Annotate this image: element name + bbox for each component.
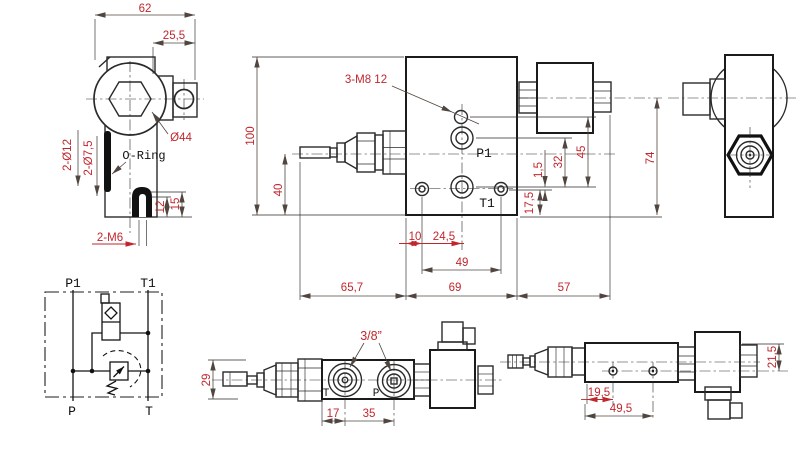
dim-57: 57 [558,282,571,294]
oring-label: O-Ring [122,149,165,163]
schematic-port-t1: T1 [140,276,156,291]
port-label-t: T [323,388,330,400]
schematic-port-p: P [68,404,76,419]
dim-thread-note: 3-M8 12 [345,74,387,86]
schematic-port-t: T [145,404,153,419]
dim-holes-12: 2-Ø12 [62,139,74,171]
dim-holes-7-5: 2-Ø7,5 [83,140,95,175]
m8-hole-left [416,183,429,196]
dim-width-62: 62 [139,3,152,15]
adjust-stem [300,131,406,174]
view-bottom-front: T P 29 17 35 3/8” [201,322,502,426]
dim-74: 74 [645,151,657,164]
view-top-left: 62 25,5 Ø44 O-Ring 2-Ø12 2-Ø7,5 12 15 2-… [62,3,204,246]
check-valve-symbol [105,307,117,319]
dim-knob-dia: Ø44 [170,132,192,144]
m6-slot-inner [139,194,146,217]
schematic-border [45,292,162,397]
valve-body-side [585,343,678,382]
dim-49-5: 49,5 [610,403,632,415]
dim-10: 10 [409,231,422,243]
dim-offset-25-5: 25,5 [163,30,185,42]
dim-thread-m6: 2-M6 [97,232,123,244]
m8-hole-right [495,183,508,196]
schematic-port-p1: P1 [65,276,81,291]
connector-screw-side [730,403,742,418]
dim-19-5: 19,5 [588,387,610,399]
view-bottom-side: 19,5 49,5 21,5 [500,332,788,420]
oring-groove [104,131,111,192]
technical-drawing-canvas: 62 25,5 Ø44 O-Ring 2-Ø12 2-Ø7,5 12 15 2-… [0,0,800,450]
dim-35: 35 [363,408,376,420]
connector-neck-side [705,387,731,400]
port-label-t1: T1 [479,196,495,211]
port-label-p1: P1 [476,146,492,161]
dim-69: 69 [449,282,462,294]
view-main-front: P1 T1 3-M8 12 100 40 45 32 [245,57,662,300]
dim-29: 29 [201,374,213,387]
view-top-right [668,55,796,217]
dim-45: 45 [576,146,588,159]
port-stub [683,83,710,115]
end-nut-side [740,345,757,377]
dim-17: 17 [327,408,340,420]
dim-port-size: 3/8” [360,329,382,343]
dim-21-5: 21,5 [767,346,779,368]
thread-coupling-side [678,347,695,380]
connector-plug [442,322,463,342]
dim-32: 32 [553,156,565,169]
dim-height-100: 100 [245,126,257,145]
dim-65-7: 65,7 [341,282,363,294]
dim-1-5: 1,5 [533,162,545,178]
dim-24-5: 24,5 [433,231,455,243]
solenoid-coil [430,350,475,408]
dim-axis-40: 40 [273,184,285,197]
hydraulic-schematic: P1 T1 P T [45,276,162,419]
valve-drawing: 62 25,5 Ø44 O-Ring 2-Ø12 2-Ø7,5 12 15 2-… [0,0,800,450]
dim-49: 49 [456,257,469,269]
m8-hole-top [455,111,468,124]
spring-symbol [107,381,117,395]
port-label-p: P [373,388,380,400]
connector-plug-side [708,400,730,419]
dim-slot-15: 15 [170,198,182,211]
solenoid-symbol [101,294,109,303]
dim-17-5: 17,5 [524,192,536,214]
dim-slot-12: 12 [155,201,167,214]
